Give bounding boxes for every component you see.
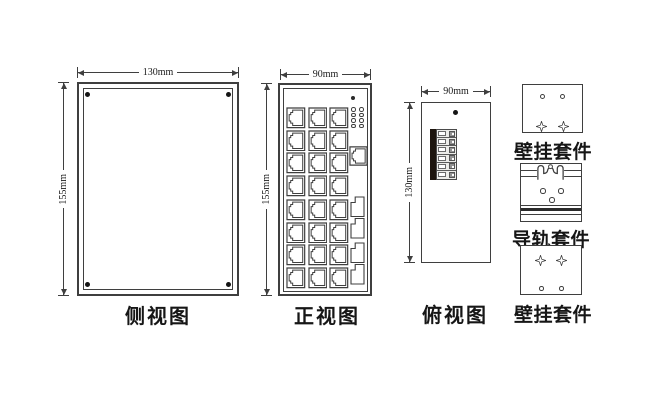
- rj45-port: [286, 267, 306, 289]
- status-led-grid: [351, 107, 364, 128]
- dimension-tick: [58, 295, 69, 296]
- rail-line: [521, 214, 581, 215]
- front-view-caption: 正视图: [294, 300, 360, 329]
- terminal-slot: [438, 131, 446, 136]
- terminal-screw: [449, 163, 455, 169]
- terminal-row: [437, 138, 456, 146]
- terminal-slot: [438, 147, 446, 152]
- screw-hole: [540, 94, 545, 99]
- wall-mount-plate-bottom: [520, 245, 582, 295]
- rj45-port-block-top: [286, 107, 349, 190]
- rj45-port: [286, 222, 306, 244]
- led-indicator: [359, 113, 364, 118]
- rj45-port: [308, 267, 328, 289]
- rj45-port: [308, 222, 328, 244]
- front-width-dimension-label: 90mm: [309, 70, 343, 80]
- rj45-port: [286, 130, 306, 152]
- top-height-dimension-label: 130mm: [405, 163, 415, 202]
- led-indicator: [359, 124, 364, 129]
- terminal-row: [437, 130, 456, 138]
- rail-line: [521, 205, 581, 206]
- rj45-port: [286, 107, 306, 129]
- terminal-screw: [449, 155, 455, 161]
- side-width-dimension: 130mm: [77, 67, 239, 78]
- led-indicator: [351, 118, 356, 123]
- rj45-port: [329, 107, 349, 129]
- dimension-tick: [404, 262, 415, 263]
- rj45-port: [308, 107, 328, 129]
- din-rail-bracket: [520, 163, 582, 222]
- power-terminal-block: [430, 129, 457, 180]
- screw-hole: [559, 286, 564, 291]
- din-clip-icon: [534, 163, 567, 185]
- top-height-dimension: 130mm: [404, 102, 415, 263]
- wall-mount-plate-top: [522, 84, 583, 133]
- top-view-panel: [421, 102, 491, 263]
- corner-screw: [226, 282, 231, 287]
- wall-mount-kit-caption-top: 壁挂套件: [514, 137, 592, 164]
- rj45-port-block-bottom: [286, 199, 349, 287]
- rj45-port: [308, 175, 328, 197]
- wall-mount-kit-caption-bottom: 壁挂套件: [514, 300, 592, 327]
- terminal-row: [437, 171, 456, 179]
- led-indicator: [351, 107, 356, 112]
- side-view-inner-line: [83, 88, 233, 290]
- star-cutout: [556, 253, 567, 271]
- dimension-tick: [261, 295, 272, 296]
- star-cutout: [558, 119, 569, 137]
- sfp-slot-group: [350, 242, 365, 285]
- dimension-tick: [370, 69, 371, 80]
- rj45-port: [329, 199, 349, 221]
- rj45-port: [329, 152, 349, 174]
- star-cutout: [536, 119, 547, 137]
- rj45-port: [286, 244, 306, 266]
- front-height-dimension-label: 155mm: [262, 170, 272, 209]
- terminal-screw: [449, 139, 455, 145]
- terminal-slot: [438, 139, 446, 144]
- corner-screw: [85, 92, 90, 97]
- dimension-tick: [238, 67, 239, 78]
- terminal-screw: [449, 147, 455, 153]
- top-view-caption: 俯视图: [422, 299, 488, 328]
- side-height-dimension-label: 155mm: [59, 170, 69, 209]
- star-cutout: [535, 253, 546, 271]
- rj45-port: [286, 152, 306, 174]
- side-height-dimension: 155mm: [58, 82, 69, 296]
- rj45-port: [329, 244, 349, 266]
- side-view-caption: 侧视图: [125, 300, 191, 329]
- corner-screw: [85, 282, 90, 287]
- terminal-slot: [438, 172, 446, 177]
- rj45-port: [286, 199, 306, 221]
- screw-hole: [540, 188, 546, 194]
- led-indicator: [359, 107, 364, 112]
- front-view-panel: [278, 83, 372, 296]
- diagram-canvas: 130mm 155mm 侧视图 90mm 155mm: [0, 0, 656, 400]
- terminal-slot: [438, 164, 446, 169]
- sfp-slot-group: [350, 196, 365, 239]
- terminal-screw: [449, 172, 455, 178]
- terminal-screw: [449, 131, 455, 137]
- rj45-port: [308, 152, 328, 174]
- led-indicator: [351, 124, 356, 129]
- dimension-tick: [490, 86, 491, 97]
- screw-hole: [549, 197, 555, 203]
- side-view-panel: [77, 82, 239, 296]
- terminal-row: [437, 146, 456, 154]
- terminal-body: [436, 129, 457, 180]
- front-width-dimension: 90mm: [280, 69, 371, 80]
- side-width-dimension-label: 130mm: [139, 68, 178, 78]
- screw-hole: [558, 188, 564, 194]
- corner-screw: [226, 92, 231, 97]
- sfp-slot-column: [350, 196, 365, 285]
- rail-band: [521, 208, 581, 211]
- led-indicator: [351, 113, 356, 118]
- power-led: [351, 96, 355, 100]
- terminal-slot: [438, 156, 446, 161]
- console-port: [349, 146, 368, 166]
- rj45-port: [329, 130, 349, 152]
- ground-screw: [453, 110, 458, 115]
- terminal-row: [437, 163, 456, 171]
- screw-hole: [560, 94, 565, 99]
- terminal-row: [437, 155, 456, 163]
- top-width-dimension: 90mm: [421, 86, 491, 97]
- rj45-port: [329, 175, 349, 197]
- rj45-port: [308, 244, 328, 266]
- rj45-port: [286, 175, 306, 197]
- top-width-dimension-label: 90mm: [439, 87, 473, 97]
- front-height-dimension: 155mm: [261, 83, 272, 296]
- rj45-port: [329, 267, 349, 289]
- led-indicator: [359, 118, 364, 123]
- rj45-port: [329, 222, 349, 244]
- rj45-port: [308, 199, 328, 221]
- screw-hole: [539, 286, 544, 291]
- rj45-port: [308, 130, 328, 152]
